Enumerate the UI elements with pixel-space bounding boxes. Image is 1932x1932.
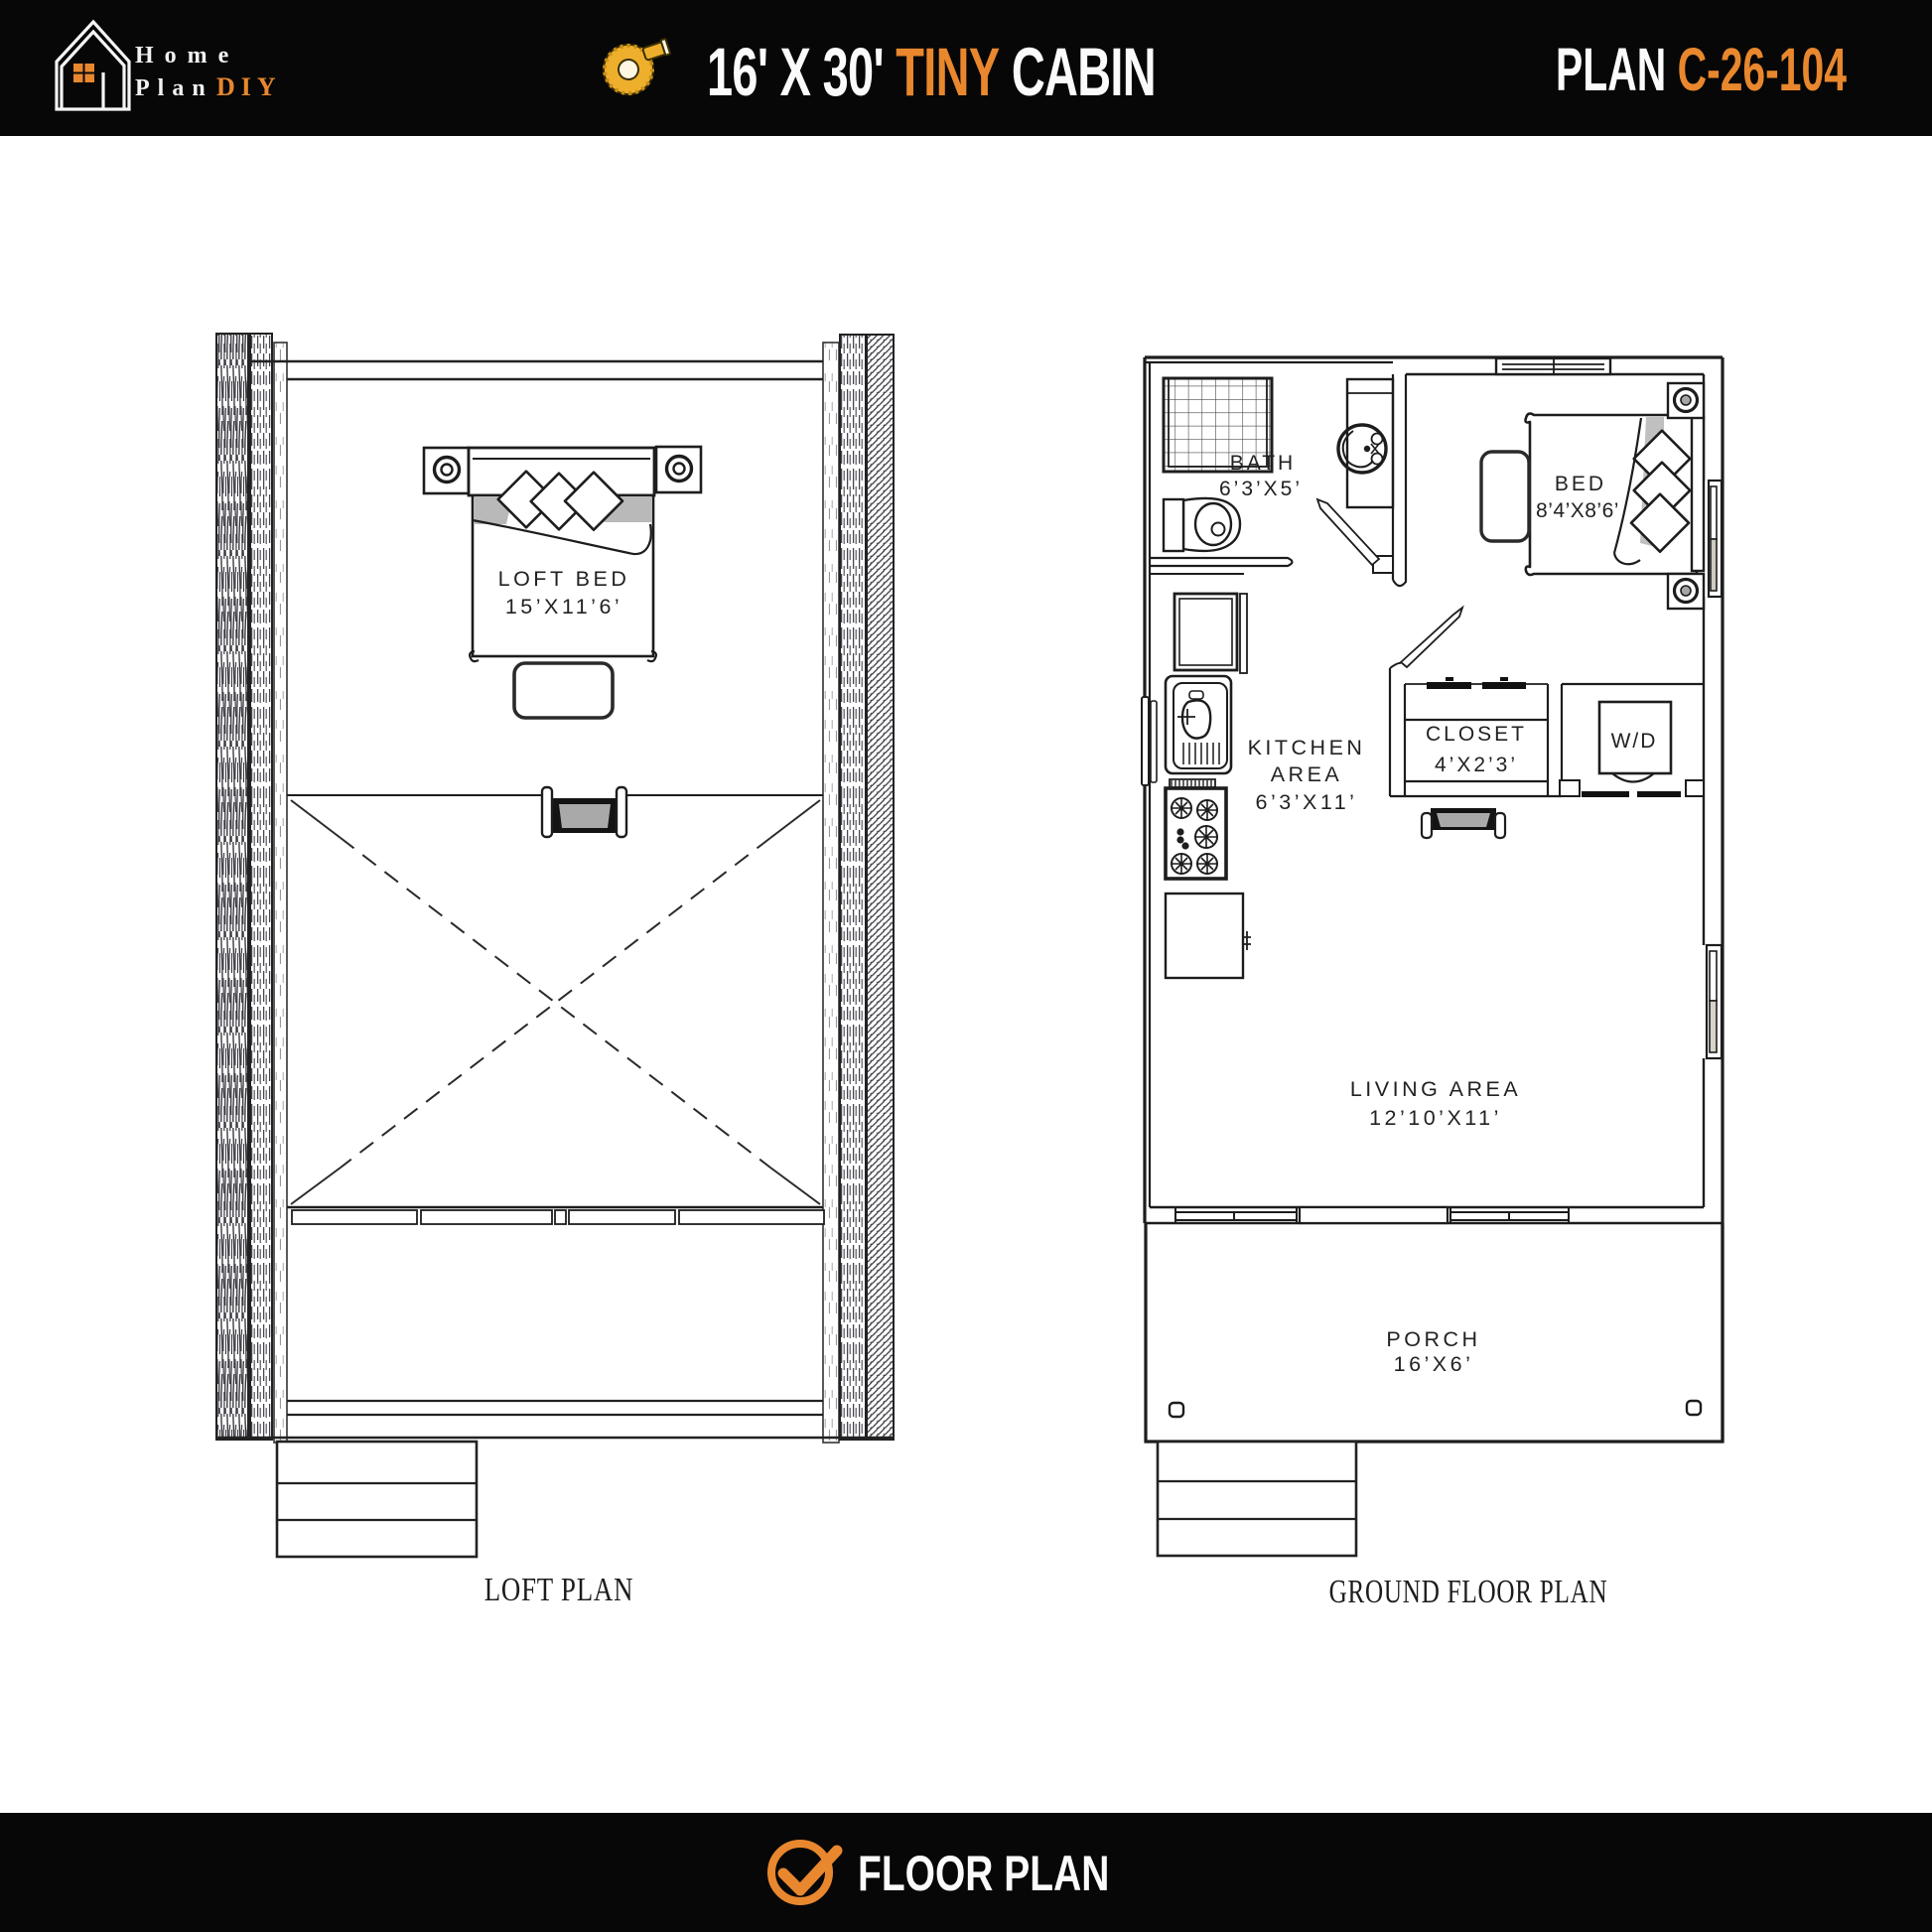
svg-text:LOFT PLAN: LOFT PLAN	[484, 1571, 634, 1608]
svg-text:BATH: BATH	[1230, 452, 1296, 475]
svg-text:DIY: DIY	[216, 72, 282, 101]
svg-text:15’X11’6’: 15’X11’6’	[505, 595, 622, 619]
svg-text:Home: Home	[135, 43, 239, 69]
svg-text:6’3’X5’: 6’3’X5’	[1219, 478, 1303, 500]
svg-text:PLAN C-26-104: PLAN C-26-104	[1556, 37, 1847, 104]
svg-text:CLOSET: CLOSET	[1426, 723, 1527, 746]
svg-text:W/D: W/D	[1611, 730, 1658, 753]
svg-text:16’X6’: 16’X6’	[1394, 1352, 1474, 1376]
svg-text:FLOOR PLAN: FLOOR PLAN	[858, 1845, 1109, 1901]
svg-text:6’3’X11’: 6’3’X11’	[1256, 790, 1358, 814]
svg-text:AREA: AREA	[1271, 762, 1343, 786]
svg-text:LOFT BED: LOFT BED	[498, 567, 630, 591]
svg-text:PORCH: PORCH	[1386, 1327, 1480, 1351]
svg-text:KITCHEN: KITCHEN	[1248, 736, 1366, 759]
svg-text:8’4’X8’6’: 8’4’X8’6’	[1536, 499, 1619, 522]
svg-text:12’10’X11’: 12’10’X11’	[1369, 1106, 1502, 1130]
svg-text:4’X2’3’: 4’X2’3’	[1435, 754, 1518, 776]
svg-text:16' X 30' TINY CABIN: 16' X 30' TINY CABIN	[707, 34, 1156, 110]
svg-text:Plan: Plan	[135, 75, 213, 101]
svg-text:BED: BED	[1555, 473, 1606, 495]
svg-text:GROUND FLOOR PLAN: GROUND FLOOR PLAN	[1329, 1573, 1608, 1610]
svg-text:LIVING AREA: LIVING AREA	[1350, 1077, 1521, 1101]
